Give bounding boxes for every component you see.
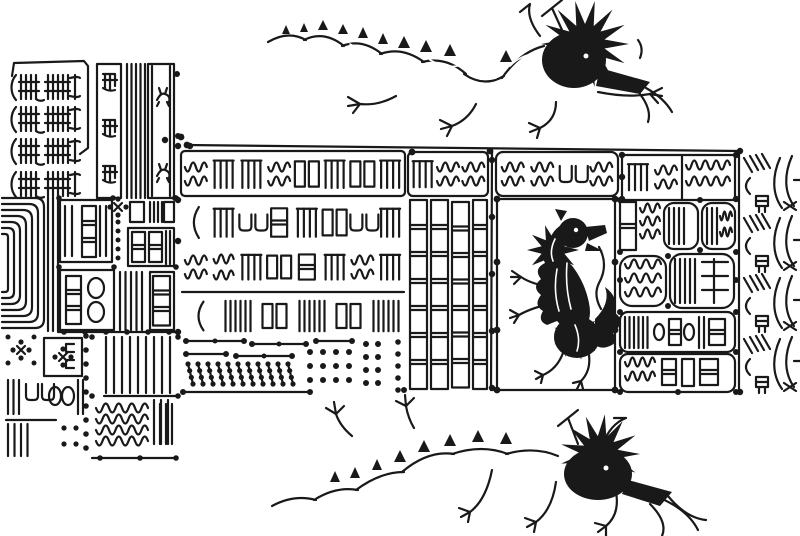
dragon-whiskers [640,88,672,122]
central-beast-illustration [510,209,621,389]
crescent-mark [638,40,642,58]
dragon-head [520,0,672,122]
beast-ribbon [596,247,604,309]
beast-tail [595,287,621,348]
top-dragon-illustration [268,0,672,138]
dorsal-spikes [282,20,512,62]
beast-head [558,218,588,248]
woodblock-print-page: Woodblock printing-plate impression of e… [0,0,800,536]
dorsal-spikes [330,430,512,482]
dragon-eye [604,466,609,471]
dragon-body [268,20,544,82]
dragon-head [558,410,706,536]
seal-pattern-layer [2,1,800,494]
dragon-jaw [622,480,672,506]
banknote-print-svg: Woodblock printing-plate impression of e… [0,0,800,536]
dragon-eye [584,54,589,59]
beast-snout [585,225,607,241]
bottom-dragon-illustration [272,395,706,536]
beast-ear [555,209,567,221]
dragon-legs [348,88,662,138]
beast-eye [574,228,578,232]
dragon-body [272,430,558,506]
dragon-jaw [596,68,650,94]
